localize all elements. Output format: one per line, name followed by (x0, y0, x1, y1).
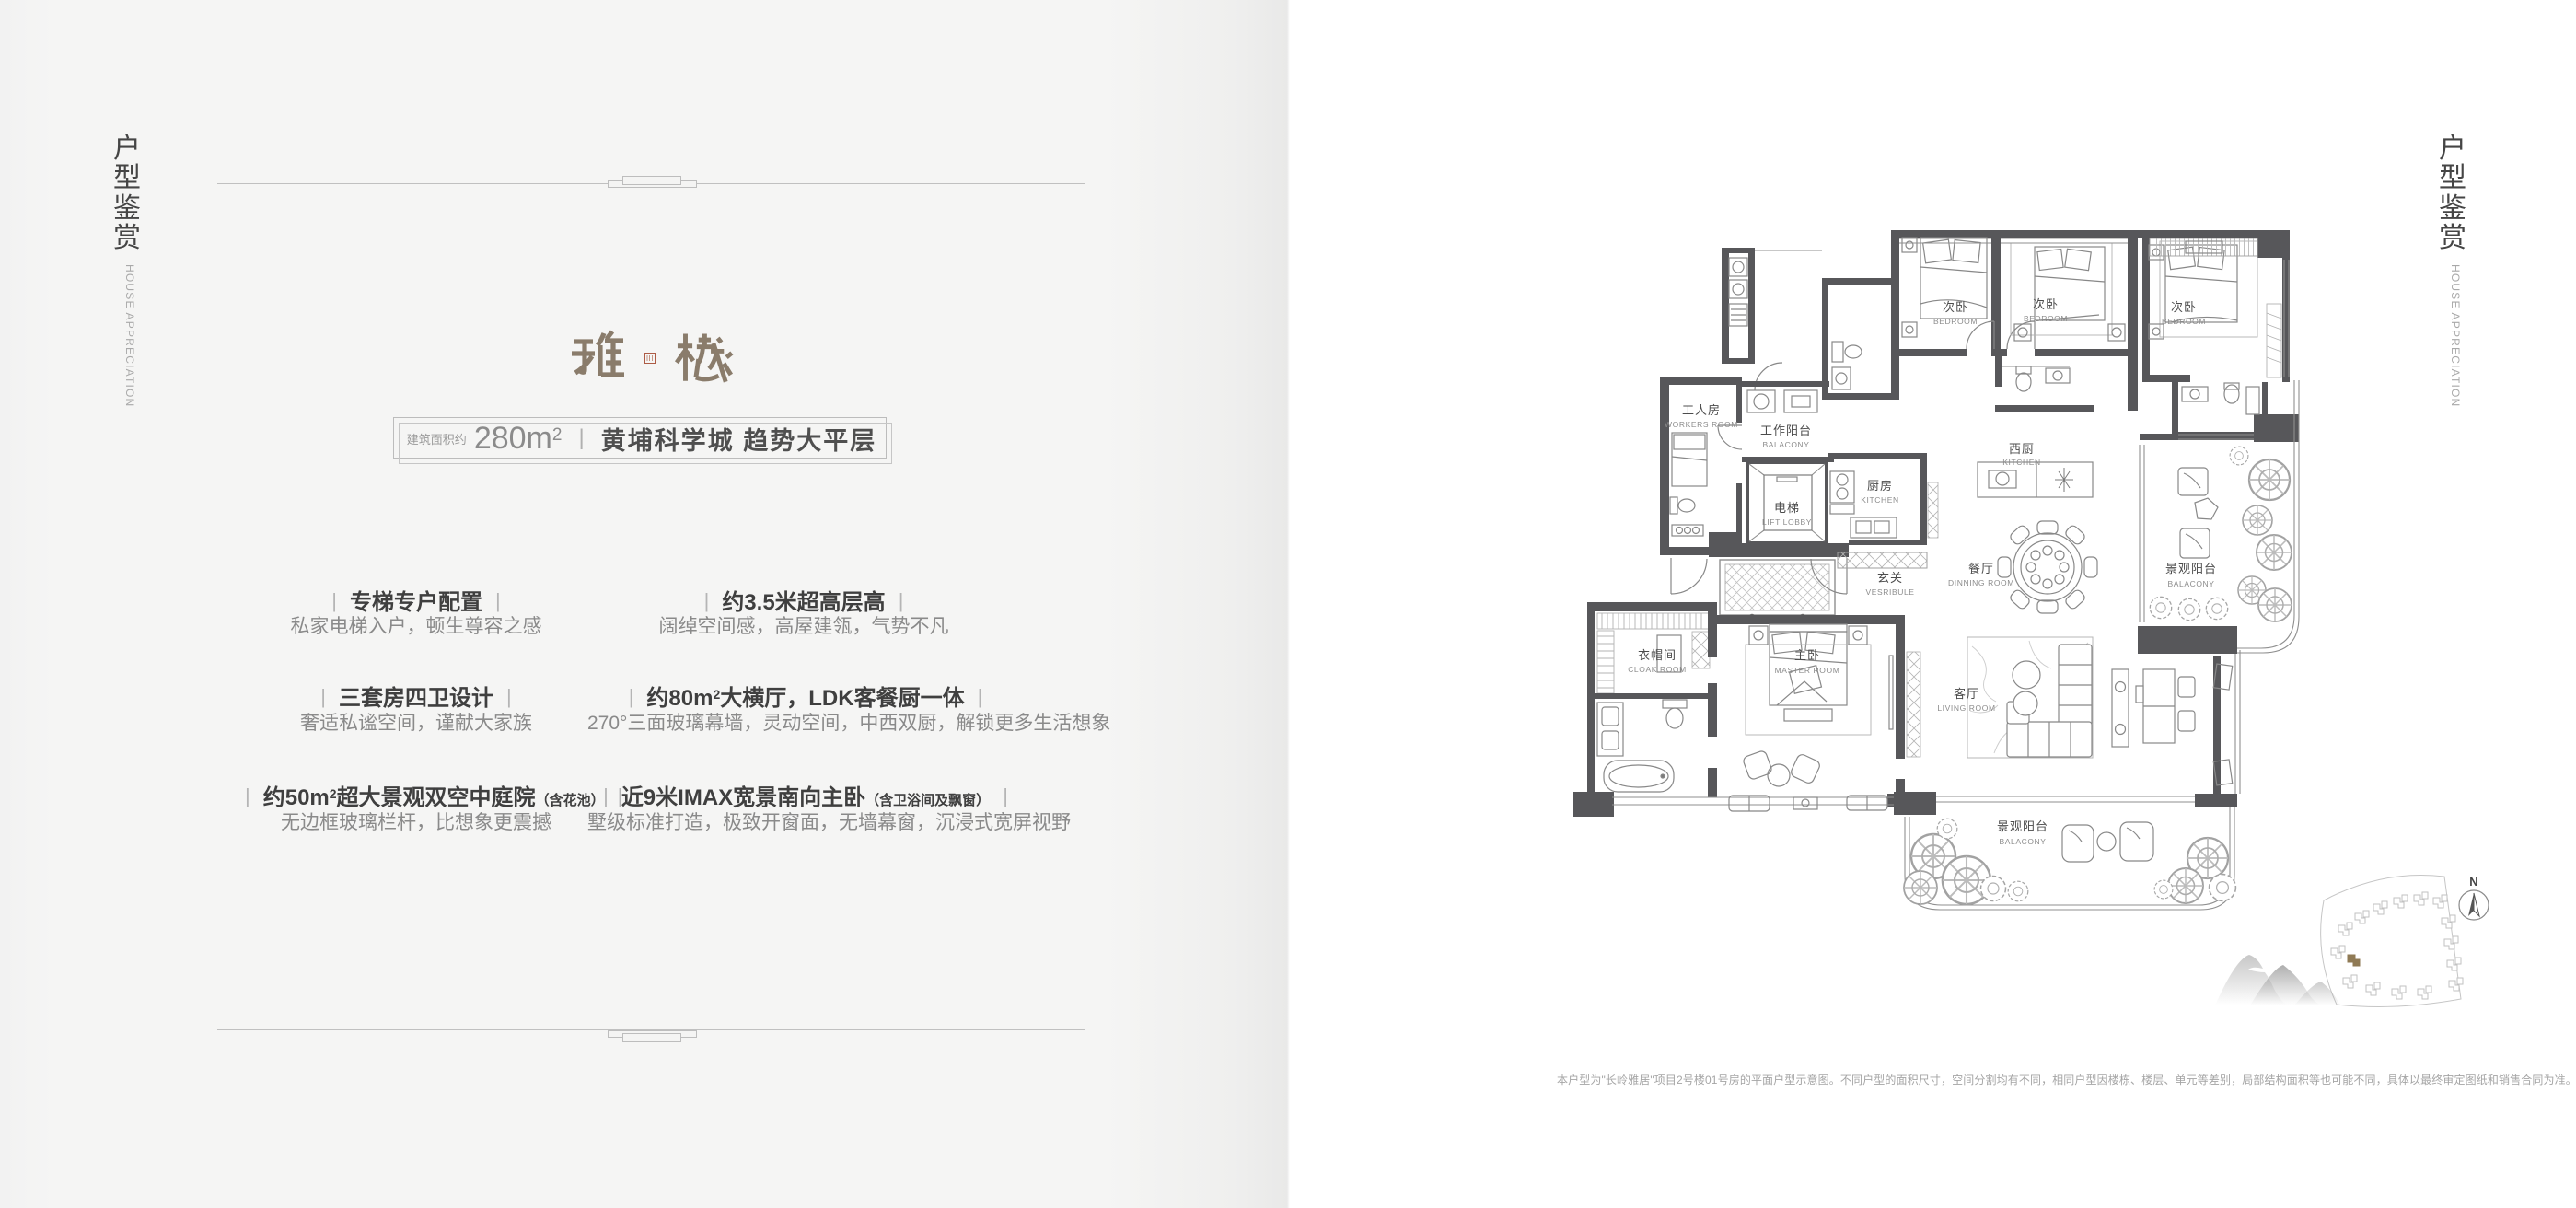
svg-text:DINNING ROOM: DINNING ROOM (1948, 578, 2014, 587)
svg-text:主卧: 主卧 (1794, 648, 1820, 662)
svg-text:BALACONY: BALACONY (1762, 440, 1809, 449)
svg-text:KITCHEN: KITCHEN (1861, 495, 1899, 505)
svg-text:玄关: 玄关 (1877, 571, 1903, 585)
svg-text:衣帽间: 衣帽间 (1638, 648, 1677, 662)
svg-text:景观阳台: 景观阳台 (1997, 819, 2048, 833)
svg-text:MASTER ROOM: MASTER ROOM (1775, 666, 1840, 675)
svg-text:WORKERS ROOM: WORKERS ROOM (1665, 420, 1738, 429)
svg-text:BALACONY: BALACONY (2167, 579, 2214, 588)
svg-text:BEDROOM: BEDROOM (2024, 314, 2068, 323)
svg-text:次卧: 次卧 (2033, 297, 2059, 311)
svg-text:N: N (2469, 875, 2477, 889)
svg-text:电梯: 电梯 (1774, 501, 1800, 515)
svg-text:BALACONY: BALACONY (1999, 837, 2046, 846)
svg-text:KITCHEN: KITCHEN (2002, 458, 2041, 467)
svg-text:LIFT LOBBY: LIFT LOBBY (1762, 517, 1812, 527)
svg-text:景观阳台: 景观阳台 (2165, 562, 2217, 575)
svg-text:VESRIBULE: VESRIBULE (1865, 587, 1914, 597)
svg-text:餐厅: 餐厅 (1968, 562, 1994, 575)
svg-text:厨房: 厨房 (1867, 479, 1893, 493)
svg-text:西厨: 西厨 (2009, 442, 2035, 456)
svg-text:BEDROOM: BEDROOM (2162, 317, 2206, 326)
svg-text:CLOAK ROOM: CLOAK ROOM (1628, 665, 1687, 674)
svg-text:BEDROOM: BEDROOM (1933, 317, 1978, 326)
svg-text:客厅: 客厅 (1954, 687, 1979, 701)
svg-text:工人房: 工人房 (1682, 403, 1721, 417)
svg-text:LIVING ROOM: LIVING ROOM (1937, 703, 1995, 713)
svg-text:次卧: 次卧 (1943, 300, 1968, 314)
svg-text:工作阳台: 工作阳台 (1760, 424, 1812, 437)
svg-text:次卧: 次卧 (2171, 300, 2197, 314)
